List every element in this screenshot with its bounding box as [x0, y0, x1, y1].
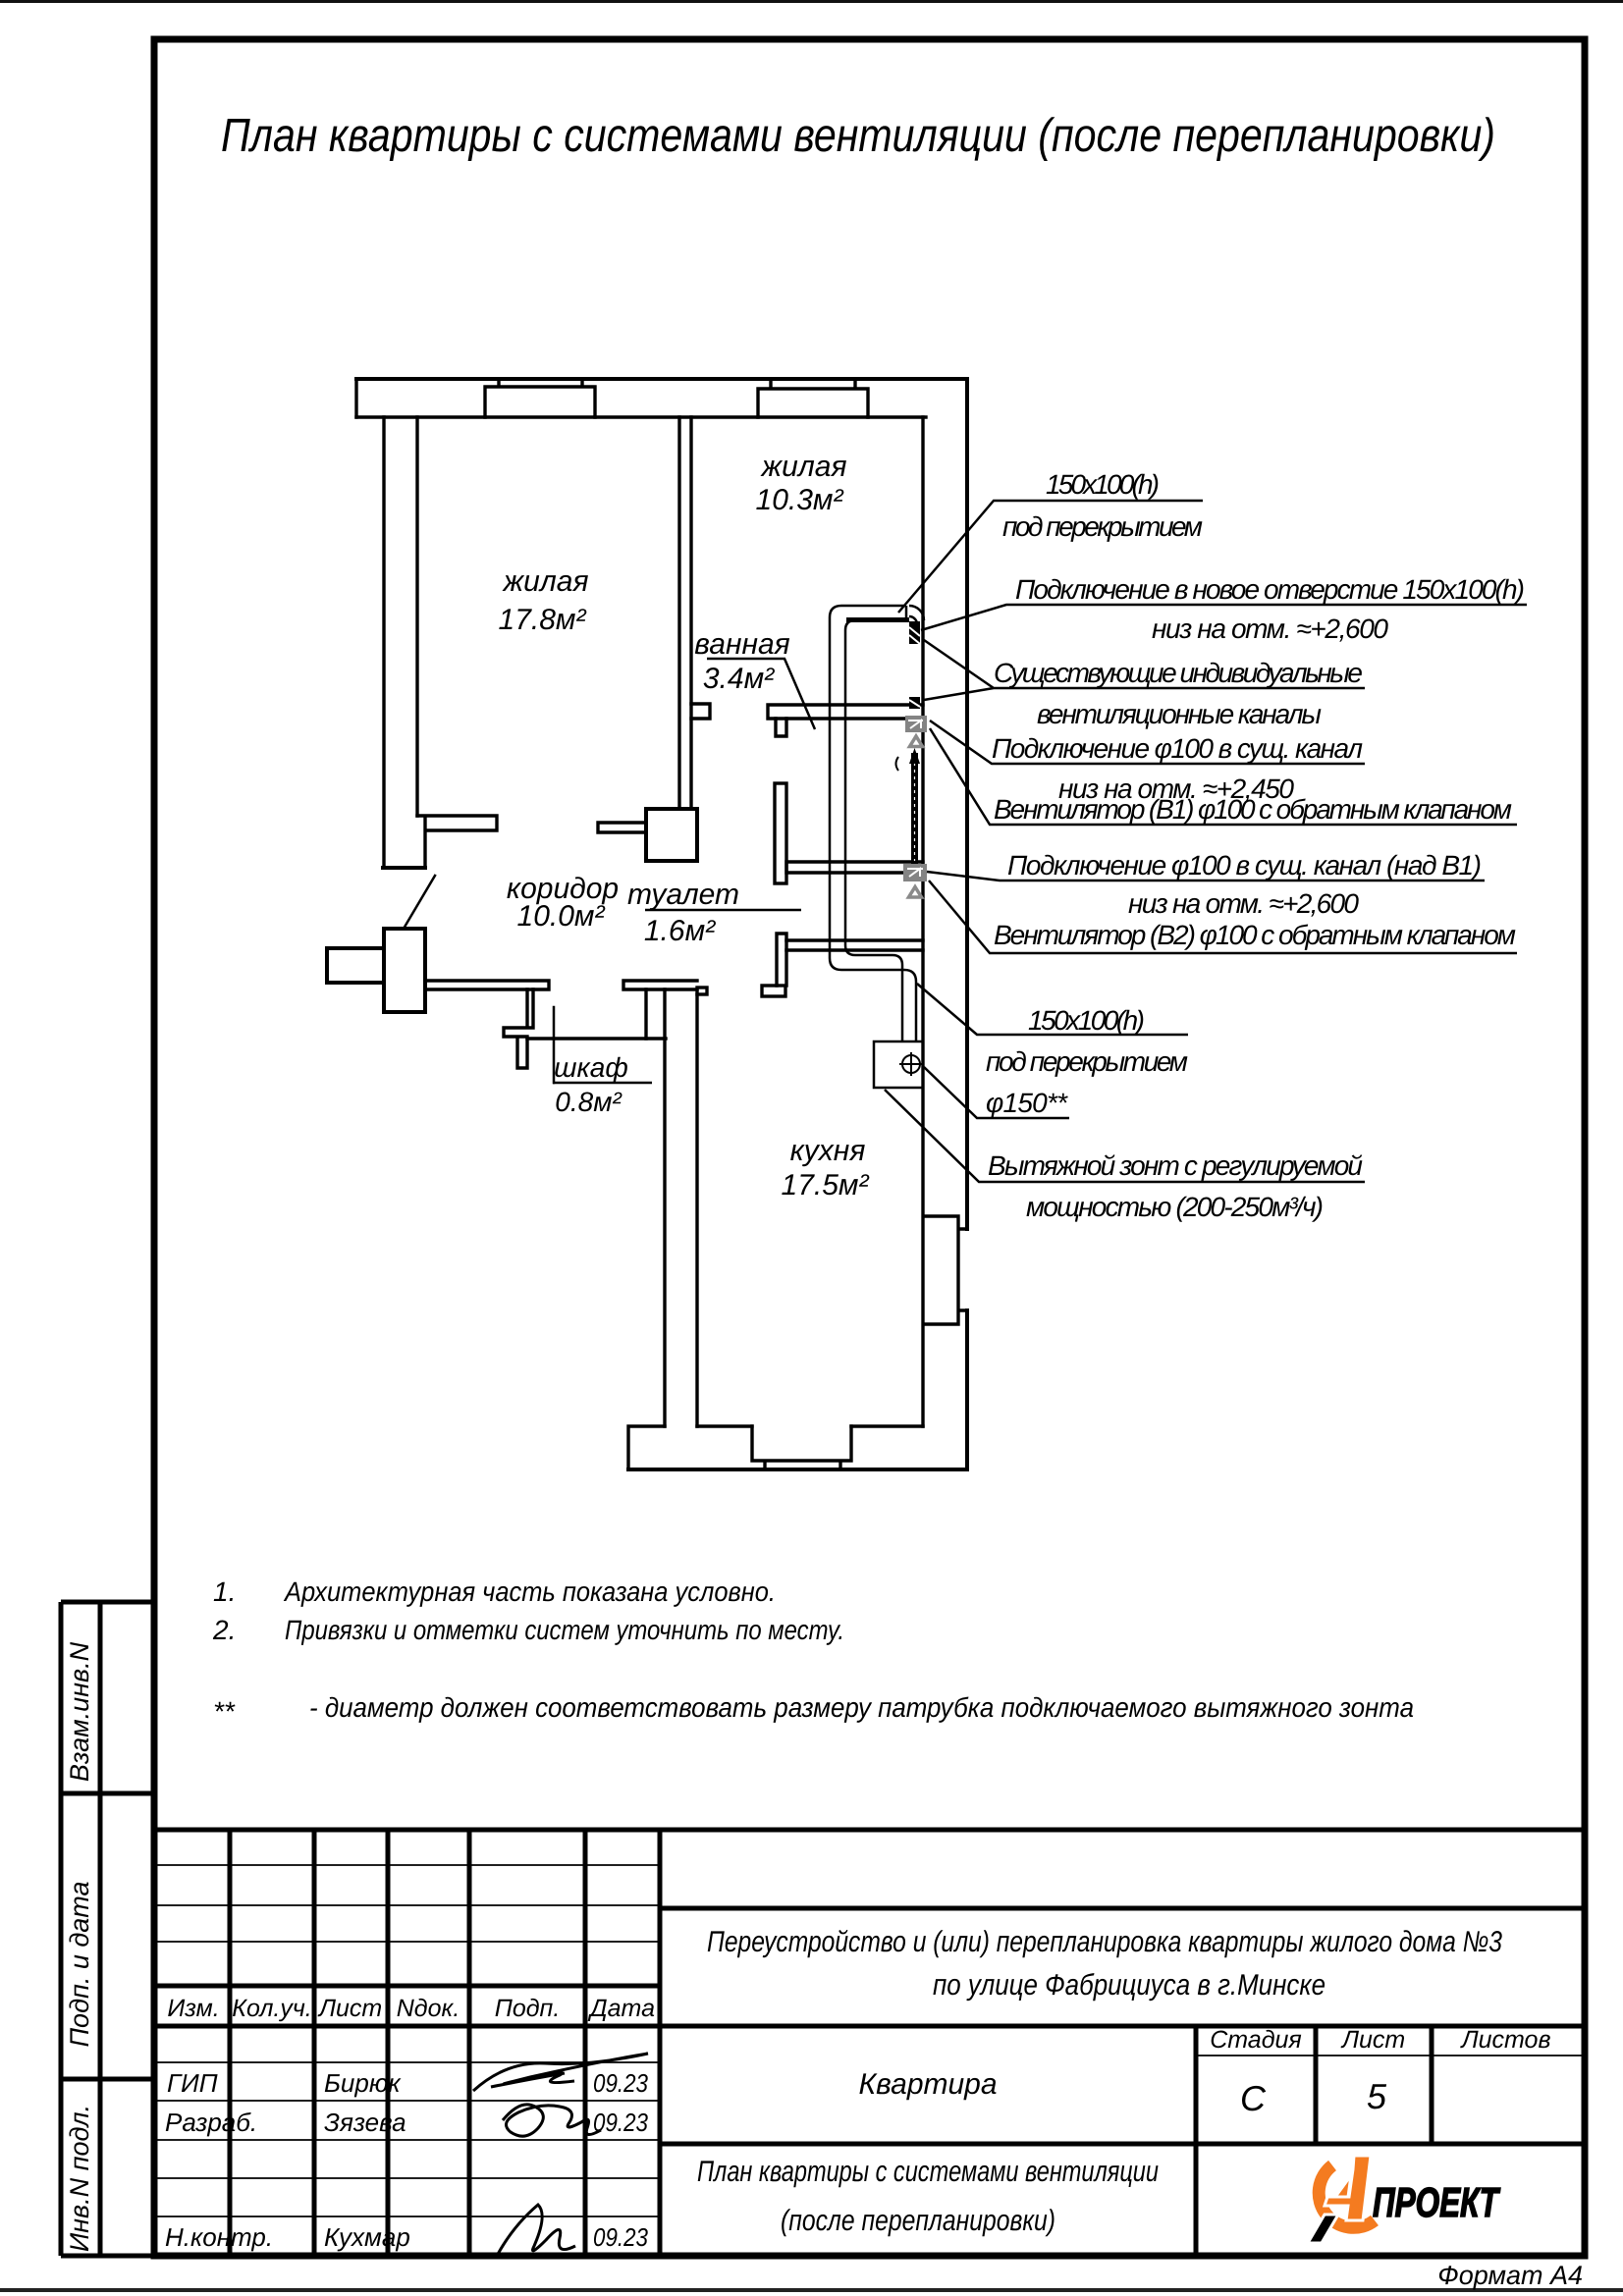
svg-text:17.5м²: 17.5м²: [782, 1169, 870, 1201]
svg-text:Вентилятор (В2) φ100 с обратны: Вентилятор (В2) φ100 с обратным клапаном: [994, 920, 1516, 950]
svg-text:**: **: [213, 1696, 236, 1727]
svg-text:Вентилятор (В1) φ100 с обратны: Вентилятор (В1) φ100 с обратным клапаном: [994, 794, 1512, 825]
svg-text:17.8м²: 17.8м²: [499, 604, 587, 636]
svg-text:Лист: Лист: [317, 1995, 382, 2022]
svg-text:вентиляционные каналы: вентиляционные каналы: [1037, 699, 1322, 729]
svg-text:ПРОЕКТ: ПРОЕКТ: [1373, 2179, 1500, 2225]
svg-text:жилая: жилая: [502, 565, 589, 598]
svg-text:Переустройство и (или) перепла: Переустройство и (или) перепланировка кв…: [707, 1926, 1502, 1958]
svg-text:09.23: 09.23: [593, 2108, 648, 2137]
svg-text:Взам.инв.N: Взам.инв.N: [65, 1641, 94, 1782]
svg-text:Бирюк: Бирюк: [324, 2068, 402, 2098]
svg-text:Формат А4: Формат А4: [1437, 2261, 1583, 2290]
svg-text:шкаф: шкаф: [554, 1052, 627, 1083]
svg-text:Дата: Дата: [587, 1995, 655, 2022]
svg-text:2.: 2.: [212, 1615, 236, 1645]
svg-text:3.4м²: 3.4м²: [703, 663, 775, 695]
svg-text:низ на отм. ≈+2,600: низ на отм. ≈+2,600: [1152, 614, 1388, 644]
svg-text:Зязева: Зязева: [324, 2108, 406, 2137]
svg-text:С: С: [1240, 2078, 1267, 2118]
svg-text:Стадия: Стадия: [1210, 2026, 1302, 2054]
svg-text:ГИП: ГИП: [167, 2068, 218, 2098]
svg-text:под перекрытием: под перекрытием: [986, 1046, 1188, 1077]
svg-text:5: 5: [1367, 2076, 1387, 2116]
svg-text:Кол.уч.: Кол.уч.: [232, 1995, 312, 2022]
svg-text:10.3м²: 10.3м²: [756, 484, 844, 516]
svg-text:09.23: 09.23: [593, 2068, 648, 2098]
svg-text:План квартиры с системами вент: План квартиры с системами вентиляции: [697, 2156, 1159, 2188]
svg-text:низ на отм. ≈+2,600: низ на отм. ≈+2,600: [1128, 888, 1359, 919]
svg-text:1.: 1.: [213, 1576, 236, 1607]
svg-text:Подп.: Подп.: [495, 1995, 561, 2022]
svg-text:Н.контр.: Н.контр.: [165, 2222, 273, 2252]
svg-text:Квартира: Квартира: [858, 2068, 997, 2101]
svg-text:Лист: Лист: [1340, 2026, 1405, 2054]
svg-text:Подключение φ100 в сущ. канал: Подключение φ100 в сущ. канал: [992, 733, 1363, 764]
svg-text:Вытяжной зонт с регулируемой: Вытяжной зонт с регулируемой: [988, 1150, 1363, 1181]
svg-text:туалет: туалет: [627, 879, 739, 911]
svg-text:План квартиры с системами вент: План квартиры с системами вентиляции (по…: [221, 110, 1495, 162]
svg-text:мощностью (200-250м³/ч): мощностью (200-250м³/ч): [1026, 1192, 1324, 1222]
svg-text:φ150**: φ150**: [986, 1088, 1068, 1118]
svg-text:Подп. и дата: Подп. и дата: [65, 1881, 94, 2047]
svg-text:Подключение в новое отверстие: Подключение в новое отверстие 150x100(h): [1015, 574, 1525, 605]
svg-text:Подключение φ100 в сущ. канал: Подключение φ100 в сущ. канал (над В1): [1007, 850, 1482, 881]
svg-text:150x100(h): 150x100(h): [1046, 469, 1160, 500]
svg-text:жилая: жилая: [760, 451, 847, 483]
svg-text:Привязки и отметки систем уточ: Привязки и отметки систем уточнить по ме…: [285, 1615, 844, 1645]
svg-text:под перекрытием: под перекрытием: [1002, 511, 1203, 542]
svg-text:Nдок.: Nдок.: [397, 1995, 460, 2022]
svg-text:ванная: ванная: [694, 628, 789, 661]
svg-text:(после перепланировки): (после перепланировки): [781, 2205, 1055, 2237]
svg-text:по улице Фабрициуса в г.Минске: по улице Фабрициуса в г.Минске: [933, 1969, 1325, 2002]
svg-text:0.8м²: 0.8м²: [555, 1087, 622, 1117]
svg-text:150x100(h): 150x100(h): [1028, 1005, 1145, 1036]
svg-text:Листов: Листов: [1459, 2026, 1550, 2054]
svg-text:Изм.: Изм.: [167, 1995, 219, 2022]
svg-text:Архитектурная часть показана у: Архитектурная часть показана условно.: [283, 1576, 776, 1607]
svg-text:Инв.N подл.: Инв.N подл.: [65, 2105, 94, 2252]
svg-text:09.23: 09.23: [593, 2222, 648, 2252]
svg-text:кухня: кухня: [790, 1135, 866, 1167]
svg-text:Существующие индивидуальные: Существующие индивидуальные: [994, 658, 1363, 688]
svg-text:Кухмар: Кухмар: [324, 2222, 410, 2252]
svg-text:10.0м²: 10.0м²: [517, 900, 606, 933]
svg-text:Разраб.: Разраб.: [165, 2108, 257, 2137]
svg-text:- диаметр должен соответствова: - диаметр должен соответствовать размеру…: [309, 1692, 1414, 1723]
svg-text:1.6м²: 1.6м²: [644, 915, 716, 947]
